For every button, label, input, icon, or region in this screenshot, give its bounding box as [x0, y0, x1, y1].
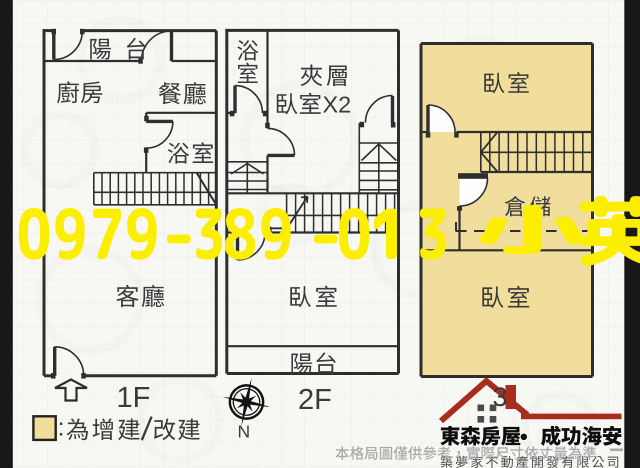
svg-text:N: N [238, 421, 251, 441]
svg-text:3: 3 [493, 382, 508, 412]
svg-text:1F: 1F [117, 382, 151, 414]
svg-text::: : [58, 415, 65, 442]
svg-text:2F: 2F [298, 384, 332, 416]
svg-text:X2: X2 [323, 92, 352, 118]
